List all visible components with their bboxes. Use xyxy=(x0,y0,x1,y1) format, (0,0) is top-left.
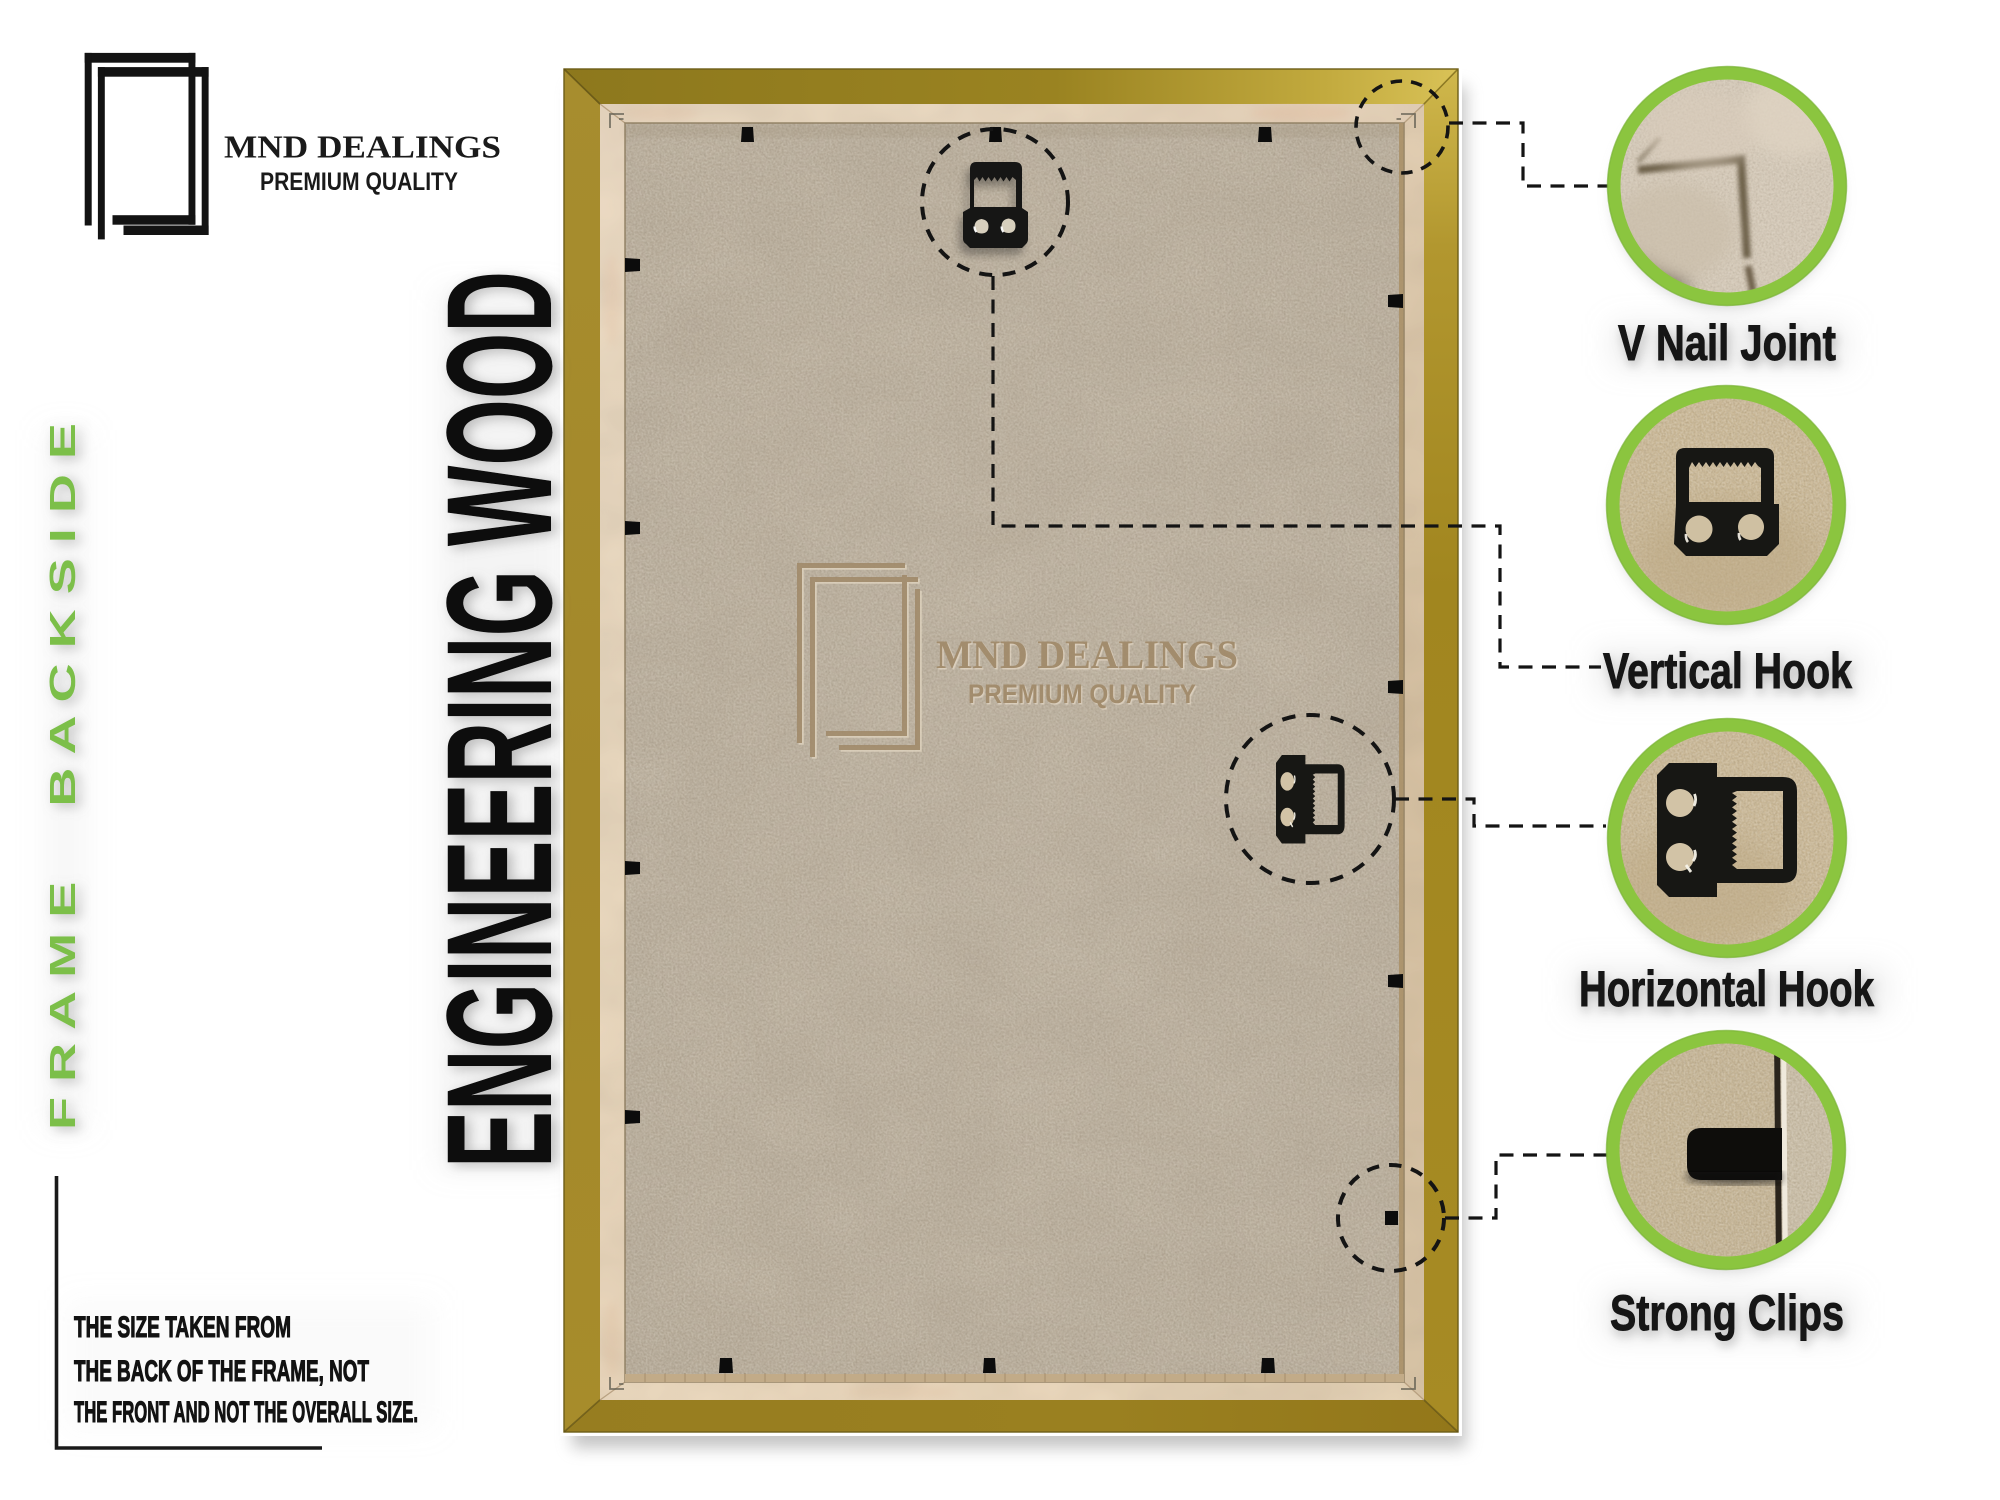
svg-text:THE SIZE TAKEN FROM: THE SIZE TAKEN FROM xyxy=(74,1311,291,1344)
svg-text:Horizontal Hook: Horizontal Hook xyxy=(1579,961,1874,1017)
svg-text:PREMIUM QUALITY: PREMIUM QUALITY xyxy=(260,168,458,196)
svg-text:PREMIUM QUALITY: PREMIUM QUALITY xyxy=(968,679,1196,709)
svg-text:Vertical Hook: Vertical Hook xyxy=(1603,643,1852,699)
svg-text:THE BACK OF THE FRAME, NOT: THE BACK OF THE FRAME, NOT xyxy=(74,1355,369,1388)
svg-text:V Nail Joint: V Nail Joint xyxy=(1618,315,1836,371)
svg-text:ENGINEERING WOOD: ENGINEERING WOOD xyxy=(415,271,583,1168)
svg-text:Strong Clips: Strong Clips xyxy=(1610,1285,1844,1341)
svg-text:MND DEALINGS: MND DEALINGS xyxy=(936,632,1238,677)
svg-text:F R A M E B A C K S I D E: F R A M E B A C K S I D E xyxy=(42,423,83,1130)
svg-text:THE FRONT AND NOT THE OVERALL: THE FRONT AND NOT THE OVERALL SIZE. xyxy=(74,1396,418,1429)
svg-text:MND DEALINGS: MND DEALINGS xyxy=(224,129,501,165)
